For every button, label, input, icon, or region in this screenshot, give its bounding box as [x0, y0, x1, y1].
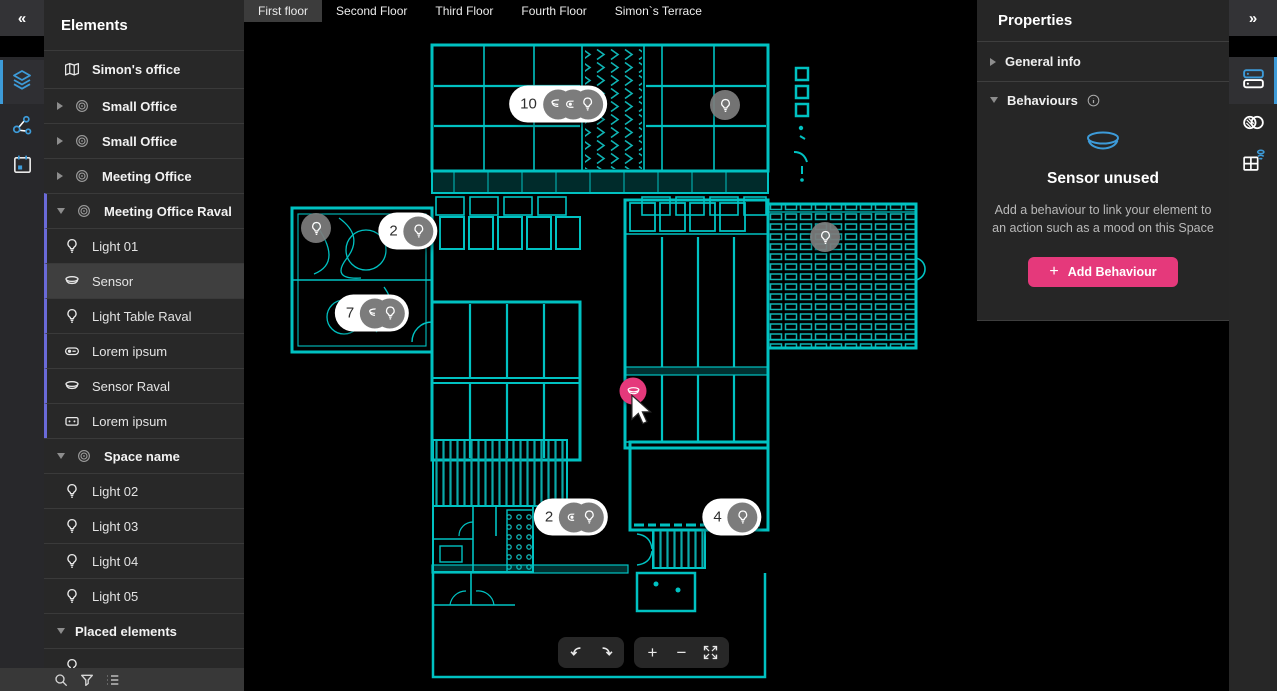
add-behaviour-label: Add Behaviour	[1068, 265, 1157, 279]
chevron-down-icon[interactable]	[57, 453, 65, 459]
tree-item-light-02[interactable]: Light 02	[44, 473, 244, 508]
bulb-icon	[62, 552, 82, 570]
behaviours-label: Behaviours	[1007, 93, 1078, 108]
linked-rings-icon	[1241, 110, 1266, 140]
tree-item-label: Lorem ipsum	[92, 344, 167, 359]
properties-title: Properties	[977, 0, 1229, 42]
bulb-icon	[574, 502, 604, 532]
tree-item-small-office[interactable]: Small Office	[44, 88, 244, 123]
bulb-icon	[404, 216, 434, 246]
space-icon	[74, 202, 94, 220]
expand-panel-button[interactable]: »	[1229, 0, 1277, 36]
space-icon	[74, 447, 94, 465]
chevron-right-icon	[990, 58, 996, 66]
bulb-marker[interactable]	[710, 90, 740, 120]
tab-second-floor[interactable]: Second Floor	[322, 0, 421, 22]
tool-schedule[interactable]	[0, 145, 44, 189]
layers-icon	[10, 68, 34, 97]
tree-item-lorem-ipsum[interactable]: Lorem ipsum	[44, 333, 244, 368]
zoom-in-button[interactable]: +	[639, 639, 666, 666]
tab-third-floor[interactable]: Third Floor	[421, 0, 507, 22]
zoom-out-button[interactable]: −	[668, 639, 695, 666]
chevron-right-icon[interactable]	[57, 172, 63, 180]
bulb-marker[interactable]	[301, 213, 331, 243]
tree-item-light-01[interactable]: Light 01	[44, 228, 244, 263]
connections-icon	[11, 114, 34, 142]
space-icon	[72, 132, 92, 150]
filter-icon[interactable]	[78, 671, 95, 688]
right-rail: »	[1229, 0, 1277, 691]
tree-item-light-04[interactable]: Light 04	[44, 543, 244, 578]
bulb-marker[interactable]	[810, 222, 840, 252]
tool-connections[interactable]	[0, 106, 44, 150]
cluster-icons	[559, 502, 604, 532]
tab-first-floor[interactable]: First floor	[244, 0, 322, 22]
add-behaviour-button[interactable]: + Add Behaviour	[1028, 257, 1178, 287]
tree-item-label: Light Table Raval	[92, 309, 192, 324]
tree-item-label: Light 01	[92, 239, 138, 254]
empty-state-description: Add a behaviour to link your element to …	[991, 201, 1215, 237]
tree-item-cut-off[interactable]	[44, 648, 244, 668]
element-tree: Simon's officeSmall OfficeSmall OfficeMe…	[44, 50, 244, 668]
chevron-right-icon[interactable]	[57, 102, 63, 110]
tree-item-label: Lorem ipsum	[92, 414, 167, 429]
chevron-down-icon[interactable]	[57, 628, 65, 634]
bulb-icon	[573, 89, 603, 119]
floor-plan	[244, 22, 977, 691]
floor-tabs: First floorSecond FloorThird FloorFourth…	[244, 0, 977, 22]
section-general-info[interactable]: General info	[977, 42, 1229, 82]
sensor-icon	[62, 272, 82, 290]
tree-item-label: Sensor Raval	[92, 379, 170, 394]
tree-item-label: Small Office	[102, 99, 177, 114]
tree-item-meeting-office-raval[interactable]: Meeting Office Raval	[44, 193, 244, 228]
tree-item-meeting-office[interactable]: Meeting Office	[44, 158, 244, 193]
cluster-icons	[404, 216, 434, 246]
cluster-marker-10[interactable]: 10	[509, 86, 607, 123]
cluster-icons	[360, 298, 405, 328]
active-indicator	[0, 60, 3, 104]
tree-item-label: Sensor	[92, 274, 133, 289]
tab-fourth-floor[interactable]: Fourth Floor	[507, 0, 600, 22]
tree-item-label: Meeting Office Raval	[104, 204, 232, 219]
cluster-count: 4	[713, 509, 721, 526]
cluster-count: 7	[346, 305, 354, 322]
cluster-icons	[543, 89, 603, 119]
bulb-icon	[62, 587, 82, 605]
empty-state-title: Sensor unused	[977, 170, 1229, 188]
calendar-icon	[11, 153, 34, 181]
undo-button[interactable]	[563, 639, 590, 666]
tree-item-lorem-ipsum[interactable]: Lorem ipsum	[44, 403, 244, 438]
chevron-down-icon[interactable]	[57, 208, 65, 214]
tree-item-label: Meeting Office	[102, 169, 192, 184]
tree-item-label: Light 04	[92, 554, 138, 569]
redo-button[interactable]	[592, 639, 619, 666]
map-icon	[62, 61, 82, 79]
chevron-down-icon	[990, 97, 998, 103]
bulb-icon	[62, 657, 82, 668]
cluster-count: 2	[545, 509, 553, 526]
tree-item-light-05[interactable]: Light 05	[44, 578, 244, 613]
left-rail: «	[0, 0, 44, 691]
switch-icon	[62, 342, 82, 360]
info-icon[interactable]	[1086, 93, 1101, 108]
tree-item-label: Simon's office	[92, 62, 180, 77]
chevron-right-icon[interactable]	[57, 137, 63, 145]
properties-panel: Properties General info Behaviours	[977, 0, 1229, 691]
fit-screen-button[interactable]	[697, 639, 724, 666]
tree-item-light-03[interactable]: Light 03	[44, 508, 244, 543]
left-rail-body	[0, 57, 44, 668]
cluster-marker-7[interactable]: 7	[335, 295, 409, 332]
cluster-icons	[728, 502, 758, 532]
tree-item-simon-s-office[interactable]: Simon's office	[44, 50, 244, 88]
bulb-icon	[375, 298, 405, 328]
tree-item-space-name[interactable]: Space name	[44, 438, 244, 473]
behaviours-empty-state: Sensor unused Add a behaviour to link yo…	[977, 118, 1229, 287]
properties-panel-body: Properties General info Behaviours	[977, 0, 1229, 321]
elements-panel-title: Elements	[44, 0, 244, 50]
cluster-marker-2[interactable]: 2	[534, 499, 608, 536]
sidebar-footer	[0, 668, 244, 691]
tree-item-sensor[interactable]: Sensor	[44, 263, 244, 298]
list-view-icon[interactable]	[104, 671, 121, 688]
cluster-marker-4[interactable]: 4	[702, 499, 761, 536]
controller-icon	[62, 412, 82, 430]
search-icon[interactable]	[52, 671, 69, 688]
cluster-marker-2[interactable]: 2	[378, 213, 437, 250]
bulb-icon	[62, 237, 82, 255]
tool-layers[interactable]	[0, 60, 44, 104]
cluster-count: 10	[520, 96, 537, 113]
tree-item-label: Space name	[104, 449, 180, 464]
tree-item-small-office[interactable]: Small Office	[44, 123, 244, 158]
right-rail-body	[1229, 57, 1277, 691]
sensor-icon	[977, 130, 1229, 152]
tree-item-light-table-raval[interactable]: Light Table Raval	[44, 298, 244, 333]
app-window: «	[0, 0, 1277, 691]
tool-properties-panel[interactable]	[1229, 57, 1277, 104]
room-sensor-icon	[1241, 148, 1266, 178]
sensor-icon	[62, 377, 82, 395]
tree-item-label: Light 05	[92, 589, 138, 604]
space-icon	[72, 97, 92, 115]
space-icon	[72, 167, 92, 185]
history-toolbar	[558, 637, 624, 668]
tree-item-placed-elements[interactable]: Placed elements	[44, 613, 244, 648]
tree-item-sensor-raval[interactable]: Sensor Raval	[44, 368, 244, 403]
floorplan-canvas[interactable]: 102724 + −	[244, 22, 977, 691]
collapse-sidebar-button[interactable]: «	[0, 0, 44, 36]
tree-item-label: Light 03	[92, 519, 138, 534]
plus-icon: +	[1049, 264, 1058, 280]
general-info-label: General info	[1005, 54, 1081, 69]
bulb-icon	[62, 307, 82, 325]
tab-simon-s-terrace[interactable]: Simon`s Terrace	[601, 0, 716, 22]
device-stack-icon	[1241, 66, 1266, 96]
bulb-icon	[62, 482, 82, 500]
tree-item-label: Placed elements	[75, 624, 177, 639]
mouse-cursor	[630, 394, 656, 426]
bulb-icon	[728, 502, 758, 532]
tool-room-sensor[interactable]	[1229, 139, 1277, 186]
elements-panel: Elements Simon's officeSmall OfficeSmall…	[44, 0, 244, 668]
tree-item-label: Small Office	[102, 134, 177, 149]
tree-item-label: Light 02	[92, 484, 138, 499]
zoom-toolbar: + −	[634, 637, 729, 668]
section-behaviours[interactable]: Behaviours	[977, 82, 1229, 118]
bulb-icon	[62, 517, 82, 535]
cluster-count: 2	[389, 223, 397, 240]
